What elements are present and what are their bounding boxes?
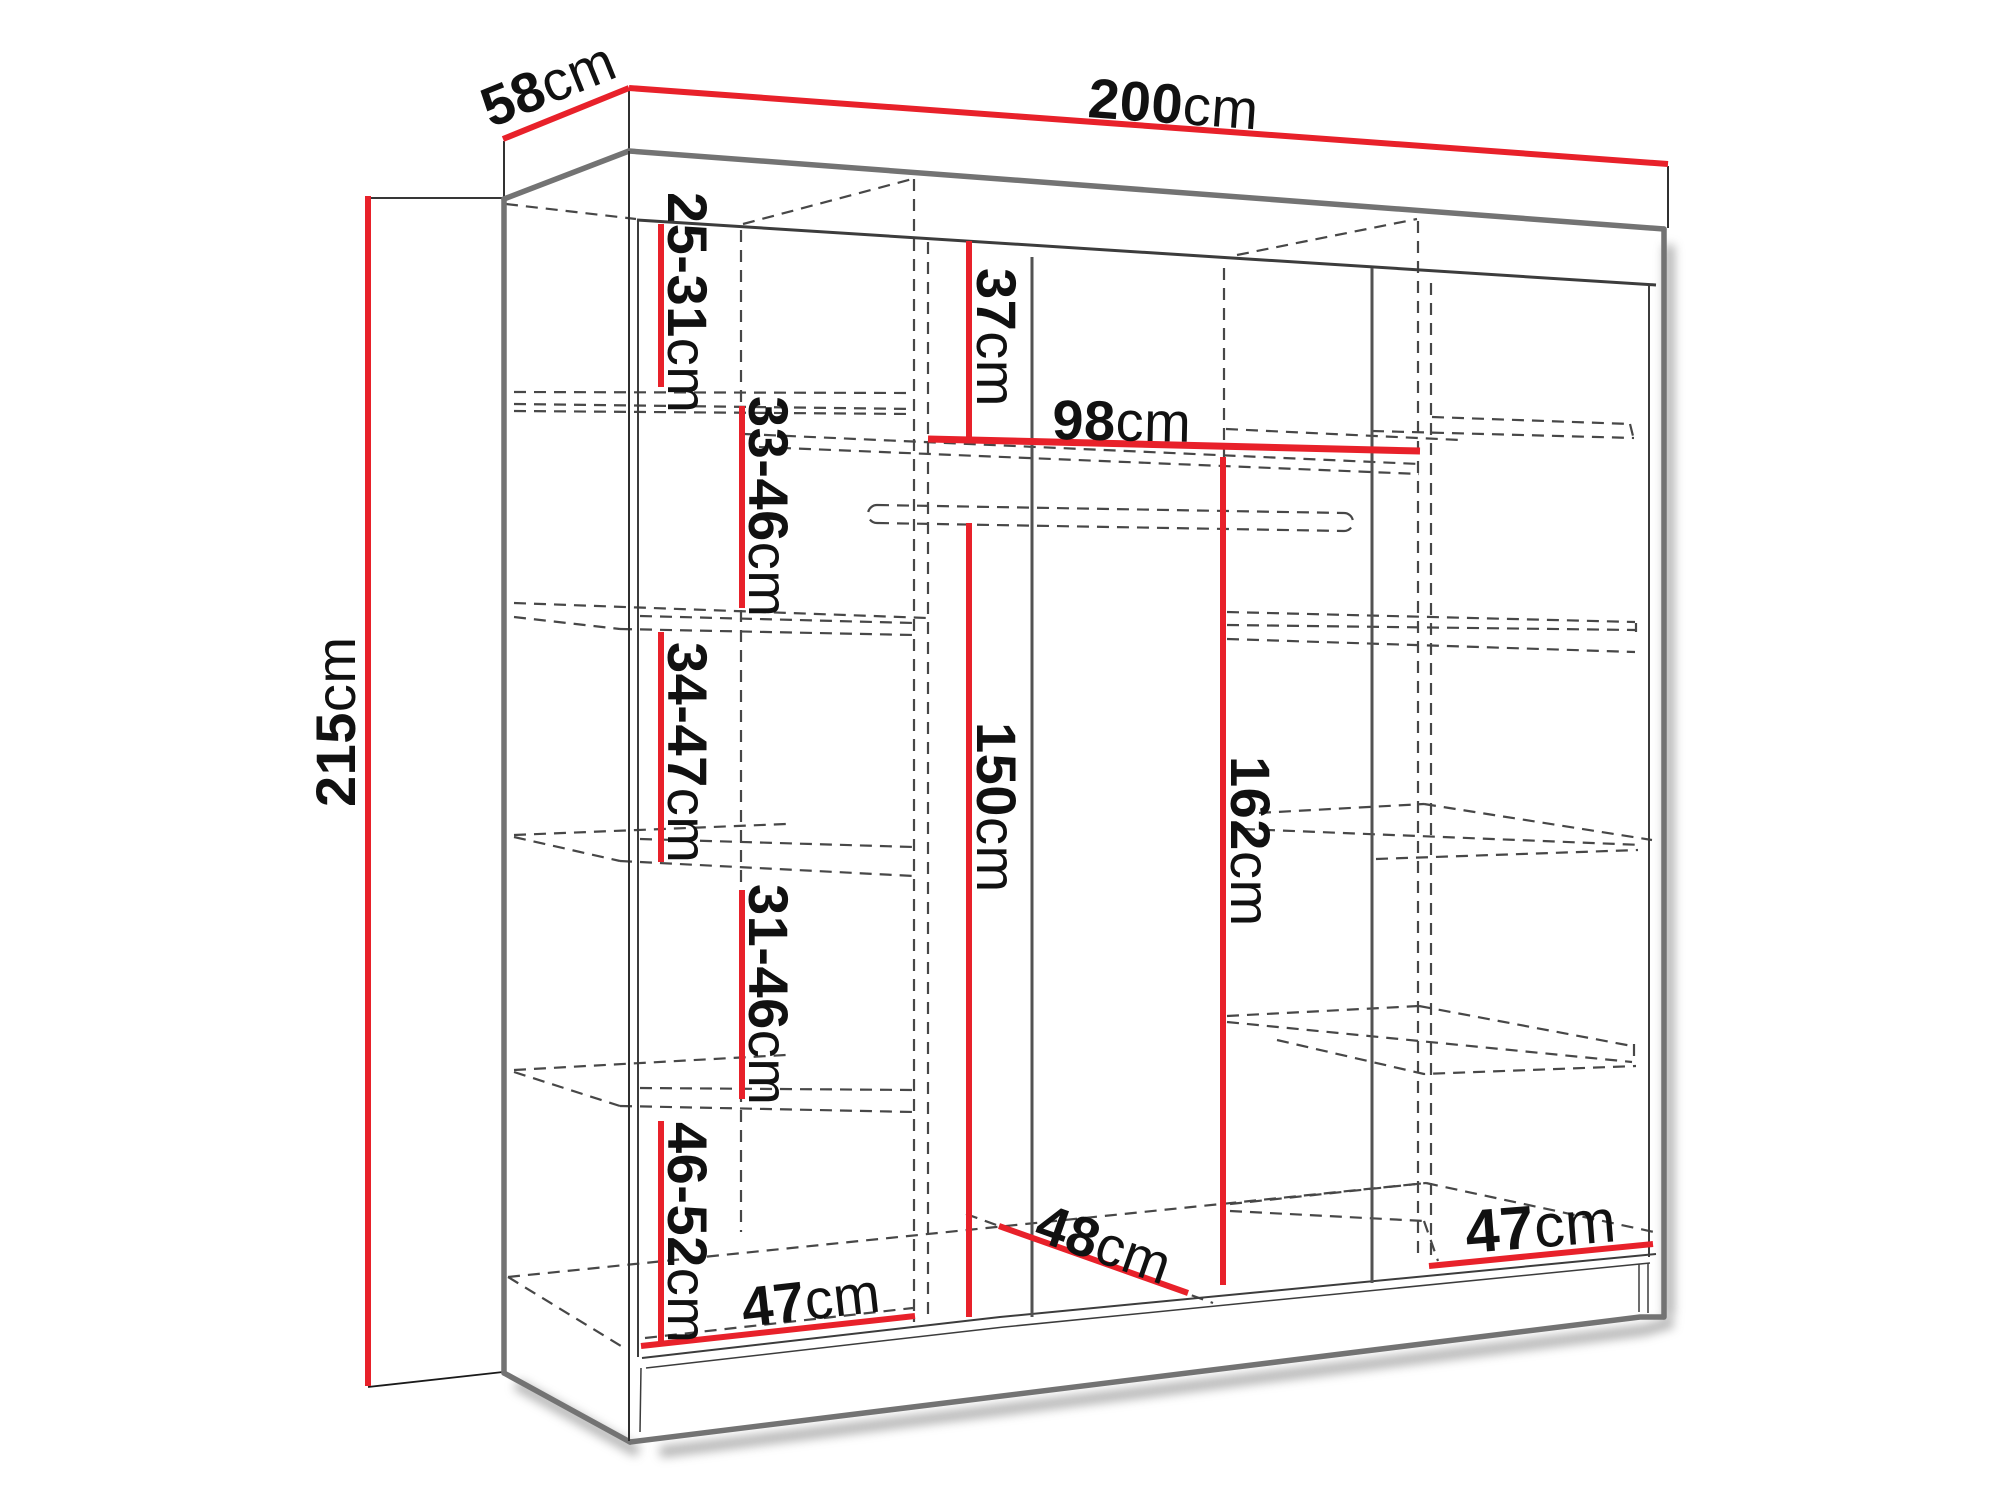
svg-text:25-31cm: 25-31cm [656,192,719,413]
svg-text:33-46cm: 33-46cm [737,396,800,617]
svg-text:46-52cm: 46-52cm [656,1122,719,1343]
svg-text:150cm: 150cm [965,722,1028,893]
svg-text:48cm: 48cm [1028,1191,1180,1297]
svg-text:37cm: 37cm [965,268,1028,407]
svg-text:215cm: 215cm [304,636,367,807]
svg-text:47cm: 47cm [1463,1186,1619,1266]
svg-text:98cm: 98cm [1052,388,1192,454]
svg-text:200cm: 200cm [1086,66,1261,141]
svg-text:34-47cm: 34-47cm [656,642,719,863]
svg-text:47cm: 47cm [738,1261,883,1339]
svg-text:31-46cm: 31-46cm [737,884,800,1105]
svg-text:162cm: 162cm [1219,756,1282,927]
